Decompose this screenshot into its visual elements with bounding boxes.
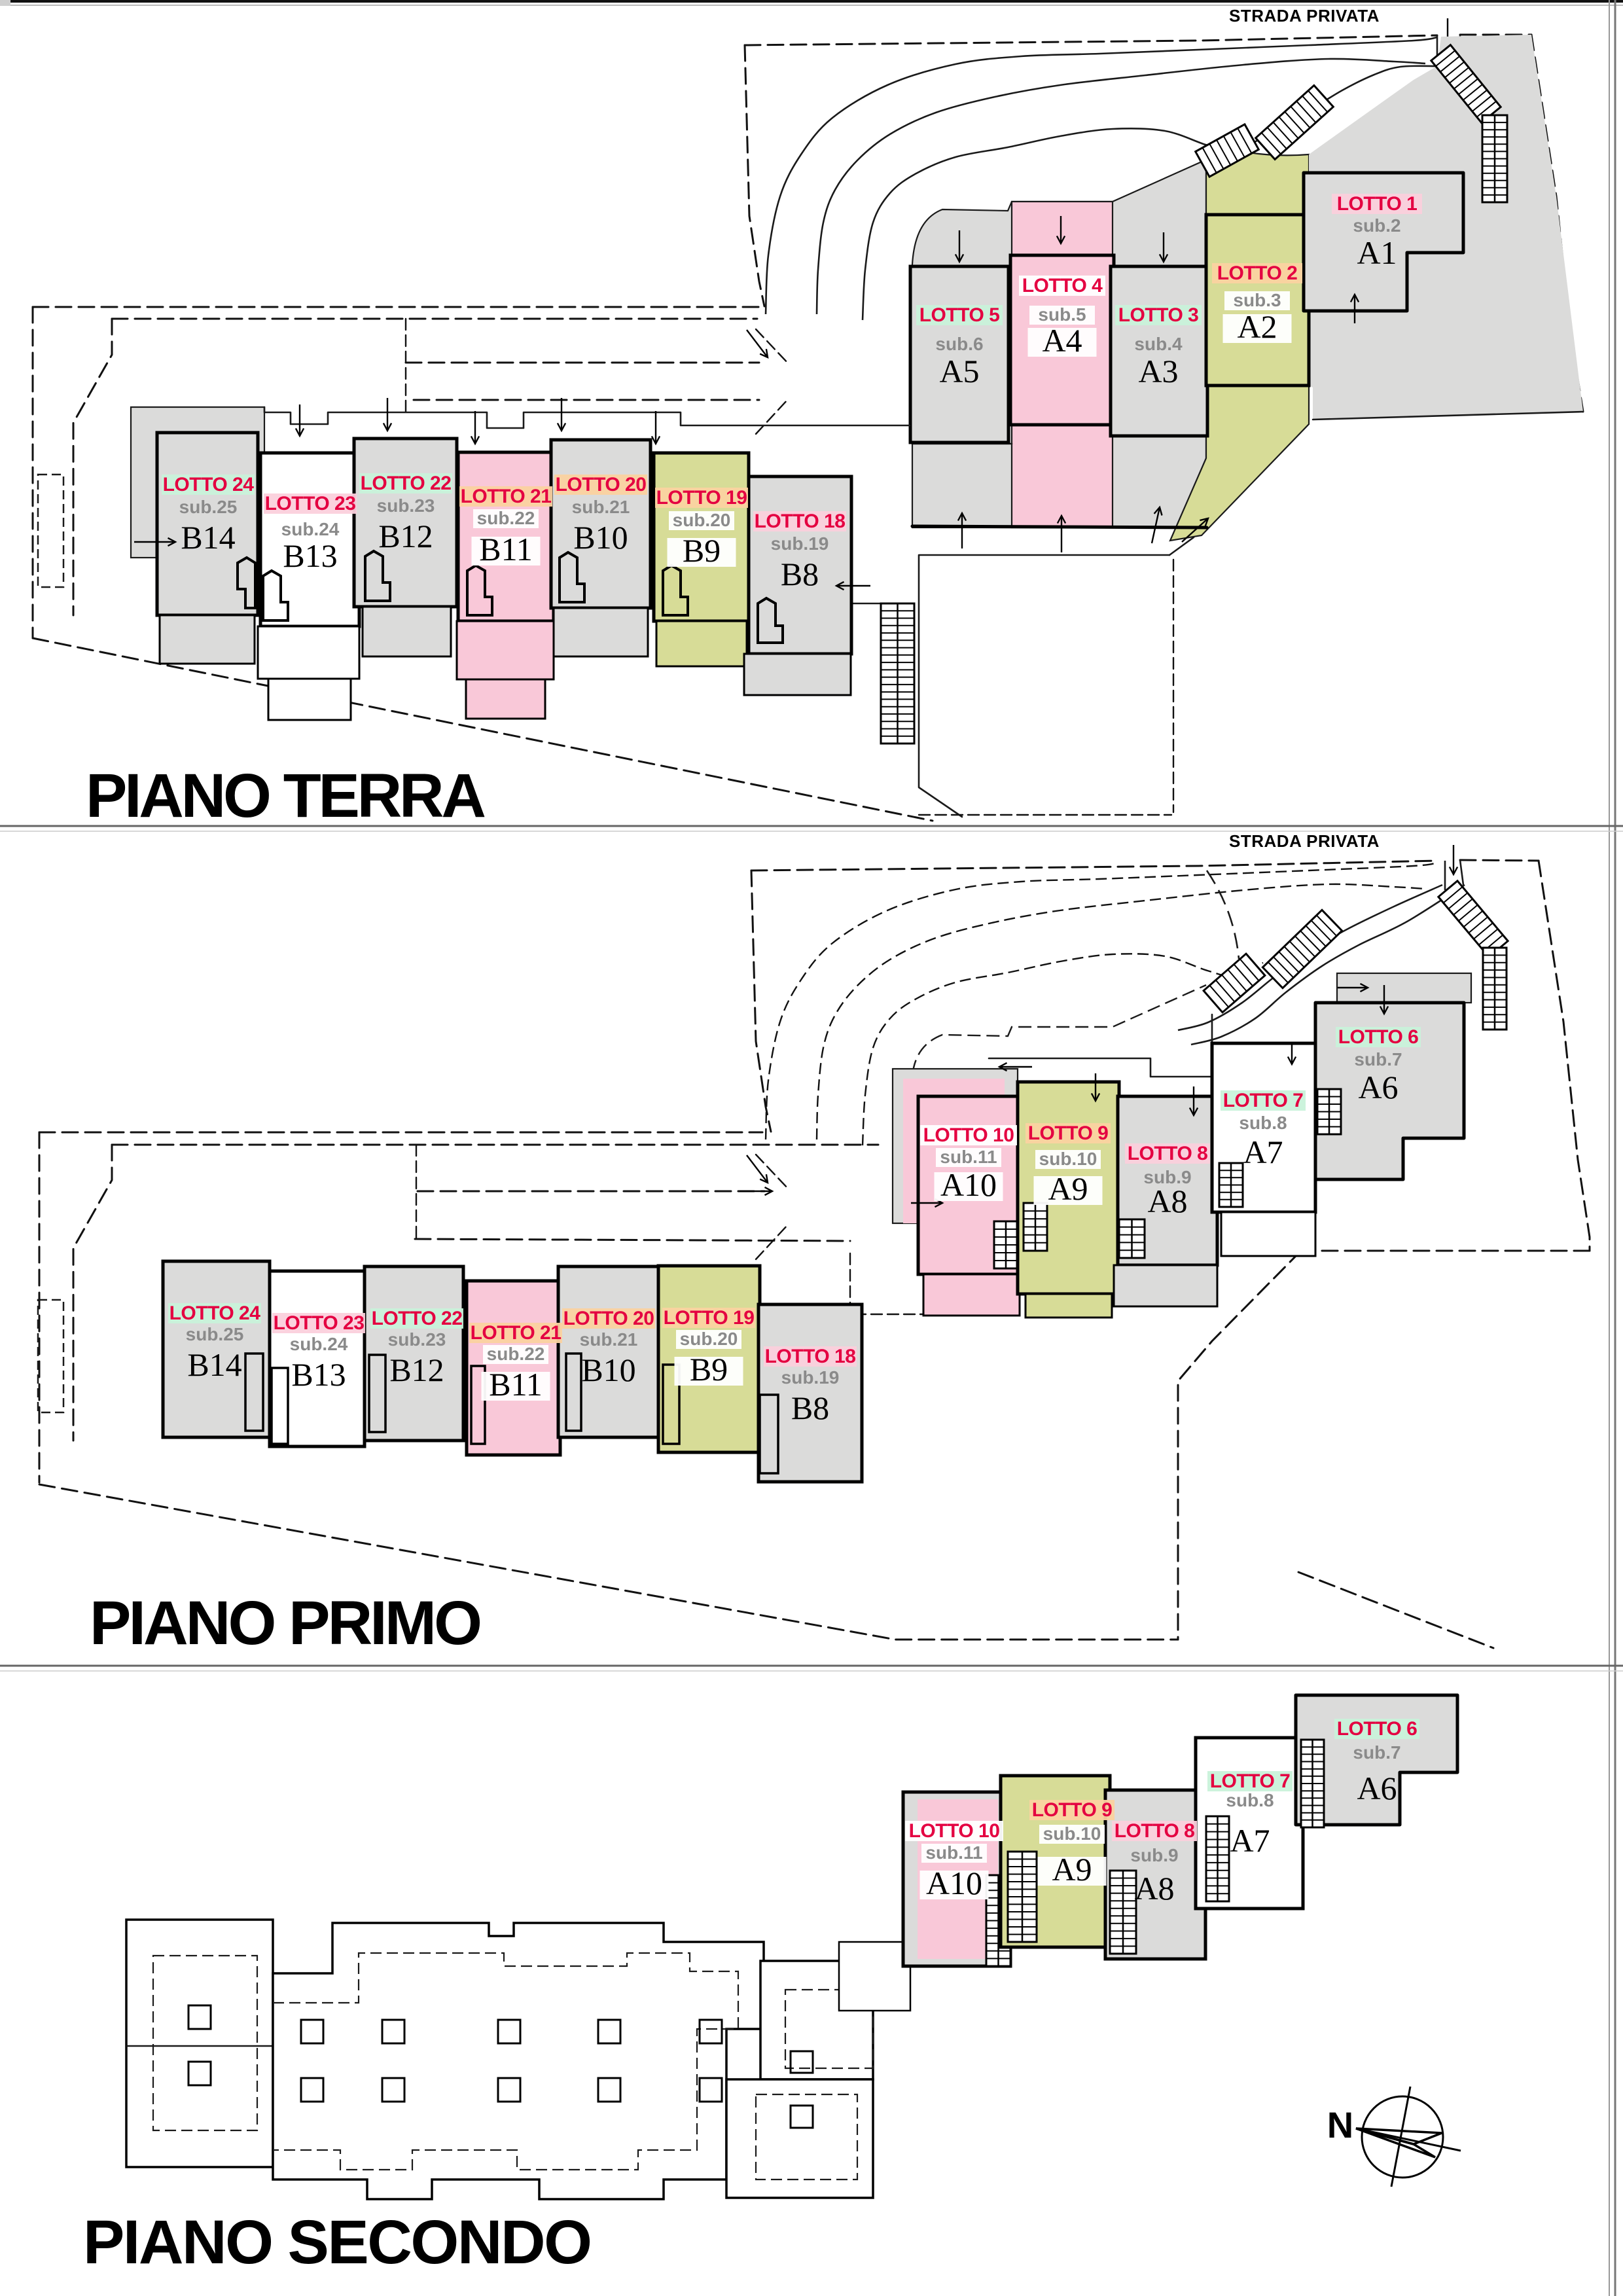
svg-text:sub.23: sub.23 <box>388 1329 446 1350</box>
svg-text:LOTTO 10: LOTTO 10 <box>909 1820 1000 1842</box>
svg-text:sub.6: sub.6 <box>935 334 983 354</box>
svg-text:sub.22: sub.22 <box>477 508 535 528</box>
svg-text:LOTTO 7: LOTTO 7 <box>1223 1090 1304 1111</box>
svg-text:LOTTO 24: LOTTO 24 <box>169 1302 261 1324</box>
svg-text:LOTTO 20: LOTTO 20 <box>556 474 647 495</box>
svg-text:A9: A9 <box>1052 1851 1092 1888</box>
svg-text:sub.2: sub.2 <box>1353 215 1400 236</box>
svg-text:A2: A2 <box>1237 308 1277 345</box>
svg-text:B10: B10 <box>573 519 628 556</box>
svg-text:A5: A5 <box>939 353 979 389</box>
svg-text:sub.19: sub.19 <box>781 1367 840 1388</box>
svg-text:LOTTO 5: LOTTO 5 <box>919 304 1000 326</box>
svg-text:A1: A1 <box>1357 234 1397 271</box>
svg-text:LOTTO 3: LOTTO 3 <box>1118 304 1199 326</box>
svg-text:LOTTO 10: LOTTO 10 <box>923 1124 1014 1146</box>
svg-text:sub.7: sub.7 <box>1354 1049 1402 1069</box>
svg-text:sub.11: sub.11 <box>925 1842 982 1863</box>
svg-text:B11: B11 <box>489 1366 543 1403</box>
svg-text:sub.10: sub.10 <box>1043 1823 1101 1844</box>
svg-text:LOTTO 6: LOTTO 6 <box>1338 1026 1419 1048</box>
svg-text:LOTTO 22: LOTTO 22 <box>361 473 452 494</box>
svg-text:sub.4: sub.4 <box>1134 334 1183 354</box>
svg-text:LOTTO 8: LOTTO 8 <box>1115 1820 1195 1842</box>
svg-text:sub.9: sub.9 <box>1130 1845 1178 1865</box>
svg-text:B8: B8 <box>791 1390 829 1426</box>
svg-text:LOTTO 7: LOTTO 7 <box>1210 1770 1291 1792</box>
svg-text:B14: B14 <box>181 519 235 556</box>
svg-text:LOTTO 2: LOTTO 2 <box>1217 262 1298 284</box>
svg-text:B11: B11 <box>479 531 533 567</box>
svg-text:sub.21: sub.21 <box>572 497 630 517</box>
svg-text:sub.20: sub.20 <box>673 510 731 530</box>
svg-text:LOTTO 9: LOTTO 9 <box>1028 1122 1109 1144</box>
svg-text:sub.7: sub.7 <box>1353 1742 1400 1763</box>
svg-text:LOTTO 21: LOTTO 21 <box>471 1322 562 1344</box>
svg-text:LOTTO 20: LOTTO 20 <box>563 1308 654 1329</box>
svg-text:PIANO TERRA: PIANO TERRA <box>86 761 486 831</box>
svg-text:LOTTO 19: LOTTO 19 <box>664 1307 755 1329</box>
svg-text:LOTTO 1: LOTTO 1 <box>1337 193 1418 215</box>
svg-text:sub.19: sub.19 <box>771 533 829 554</box>
svg-text:LOTTO 4: LOTTO 4 <box>1022 275 1103 296</box>
svg-text:PIANO PRIMO: PIANO PRIMO <box>90 1588 482 1658</box>
svg-text:LOTTO 19: LOTTO 19 <box>656 487 747 509</box>
svg-text:sub.8: sub.8 <box>1226 1790 1274 1810</box>
svg-text:B8: B8 <box>781 556 819 592</box>
svg-text:A3: A3 <box>1138 353 1178 389</box>
svg-text:LOTTO 24: LOTTO 24 <box>163 474 255 495</box>
svg-text:B14: B14 <box>187 1346 241 1383</box>
svg-text:LOTTO 23: LOTTO 23 <box>274 1312 365 1334</box>
svg-text:PIANO SECONDO: PIANO SECONDO <box>83 2208 592 2277</box>
svg-text:sub.25: sub.25 <box>179 497 238 517</box>
svg-text:LOTTO 22: LOTTO 22 <box>372 1308 463 1329</box>
svg-text:A6: A6 <box>1358 1069 1398 1105</box>
svg-text:LOTTO 18: LOTTO 18 <box>755 511 846 532</box>
svg-text:B13: B13 <box>283 537 337 574</box>
svg-text:LOTTO 23: LOTTO 23 <box>265 493 356 514</box>
svg-text:STRADA PRIVATA: STRADA PRIVATA <box>1229 831 1380 851</box>
svg-text:sub.25: sub.25 <box>186 1324 244 1344</box>
svg-text:B9: B9 <box>683 532 721 569</box>
svg-text:B12: B12 <box>389 1352 444 1388</box>
svg-text:LOTTO 9: LOTTO 9 <box>1032 1799 1113 1821</box>
svg-text:N: N <box>1327 2104 1353 2145</box>
svg-text:sub.23: sub.23 <box>377 495 435 516</box>
svg-text:A7: A7 <box>1230 1822 1270 1859</box>
svg-text:A4: A4 <box>1042 322 1082 359</box>
svg-text:A9: A9 <box>1048 1170 1088 1207</box>
svg-text:sub.21: sub.21 <box>580 1329 638 1350</box>
svg-text:LOTTO 21: LOTTO 21 <box>461 486 552 507</box>
svg-text:STRADA PRIVATA: STRADA PRIVATA <box>1229 6 1380 26</box>
svg-text:sub.10: sub.10 <box>1039 1149 1097 1169</box>
svg-text:A6: A6 <box>1357 1770 1397 1806</box>
svg-text:A10: A10 <box>926 1865 982 1901</box>
svg-text:A8: A8 <box>1134 1870 1174 1907</box>
svg-text:sub.11: sub.11 <box>940 1147 997 1167</box>
svg-text:sub.24: sub.24 <box>281 519 340 539</box>
svg-text:B13: B13 <box>291 1356 346 1393</box>
svg-text:sub.8: sub.8 <box>1239 1113 1287 1133</box>
svg-text:sub.20: sub.20 <box>680 1329 738 1349</box>
svg-text:A10: A10 <box>940 1166 997 1203</box>
svg-text:A8: A8 <box>1147 1183 1187 1219</box>
svg-text:LOTTO 18: LOTTO 18 <box>765 1346 856 1367</box>
svg-text:LOTTO 8: LOTTO 8 <box>1128 1143 1208 1164</box>
svg-text:sub.24: sub.24 <box>290 1334 348 1354</box>
svg-text:B12: B12 <box>378 518 433 554</box>
svg-text:B9: B9 <box>690 1351 728 1388</box>
svg-text:B10: B10 <box>581 1352 635 1388</box>
svg-text:sub.3: sub.3 <box>1233 290 1281 310</box>
svg-text:LOTTO 6: LOTTO 6 <box>1337 1718 1418 1740</box>
svg-text:sub.22: sub.22 <box>487 1344 545 1364</box>
svg-text:A7: A7 <box>1243 1134 1283 1170</box>
